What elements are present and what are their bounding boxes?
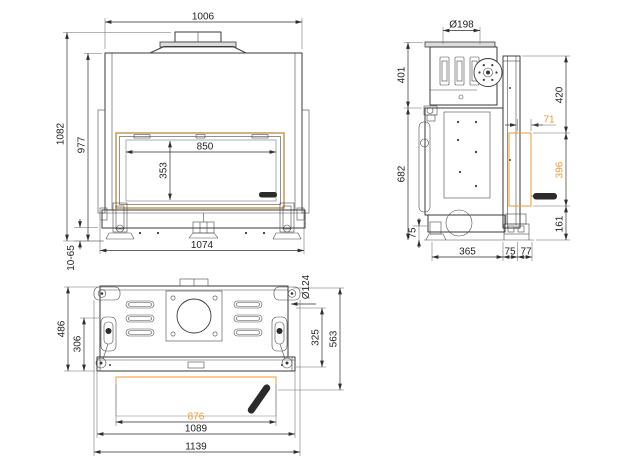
plan-front-bar [97, 357, 295, 371]
dim-side-front-top: 420 [555, 86, 566, 103]
dim-plan-depth-left: 486 [57, 320, 68, 337]
dim-plan-glass-width: 876 [188, 412, 205, 423]
front-flue-collar [150, 32, 246, 53]
technical-drawing: 1006 1082 977 850 353 1074 10-65 [0, 0, 624, 460]
dim-side-body-height: 682 [397, 165, 408, 182]
dim-side-glass-zone: 396 [555, 161, 566, 178]
dim-front-glass-width: 850 [197, 142, 214, 153]
side-view: Ø198 401 682 75 420 71 396 [397, 20, 571, 262]
dim-side-depth: 365 [459, 247, 476, 258]
dim-plan-overall-width: 1139 [185, 442, 207, 453]
dim-plan-depth-right: 563 [329, 330, 340, 347]
dim-plan-frame-width: 1089 [185, 424, 208, 435]
dim-front-body-height: 977 [77, 136, 88, 153]
damper-wheel-icon [474, 59, 502, 87]
dim-side-offset: 71 [543, 115, 555, 126]
plan-mechanism-right [272, 317, 292, 368]
dim-side-front-bottom: 161 [555, 215, 566, 232]
plan-glass-front [116, 377, 276, 416]
plan-door-handle [246, 383, 271, 415]
dim-plan-port-diameter: Ø124 [301, 274, 312, 299]
side-door-handle [531, 193, 557, 200]
side-flue-collar [425, 42, 495, 47]
front-dimensions: 1006 1082 977 850 353 1074 10-65 [56, 12, 305, 271]
dim-plan-depth-mid: 325 [311, 329, 322, 346]
dim-side-base-height: 75 [408, 227, 419, 239]
dim-side-flue-diameter: Ø198 [449, 20, 474, 31]
dim-side-depth-front: 75 [504, 247, 516, 258]
dim-front-glass-height: 353 [159, 162, 170, 179]
dim-front-foot-adjust: 10-65 [66, 245, 77, 271]
side-front-panel [503, 56, 520, 228]
dim-side-depth-edge: 77 [520, 247, 532, 258]
side-base [424, 210, 534, 240]
dim-side-collar-height: 401 [397, 66, 408, 83]
plan-view: Ø124 486 306 563 325 876 1089 [57, 274, 345, 456]
dim-front-base-width: 1074 [191, 240, 214, 251]
door-handle [259, 192, 277, 198]
side-dimensions: Ø198 401 682 75 420 71 396 [397, 20, 571, 262]
plan-hinge-right [274, 287, 300, 300]
dim-front-top-width: 1006 [192, 12, 215, 23]
plan-hinge-left [94, 287, 120, 300]
side-body [419, 106, 503, 215]
plan-mechanism-left [96, 317, 116, 368]
side-upper-box [430, 47, 502, 105]
plan-vents [126, 301, 262, 336]
plan-center-plate [166, 291, 222, 341]
front-view: 1006 1082 977 850 353 1074 10-65 [56, 12, 310, 271]
duct-opening [177, 299, 211, 333]
dim-front-overall-height: 1082 [56, 122, 67, 145]
dim-plan-depth-inner: 306 [73, 335, 84, 352]
